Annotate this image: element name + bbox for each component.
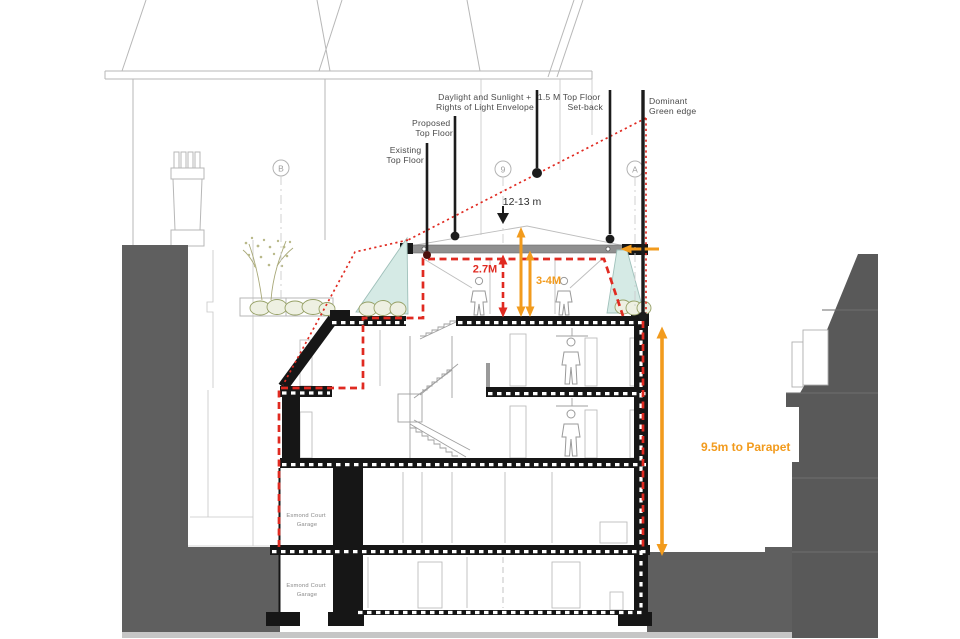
left-party-wall-mass xyxy=(122,245,188,633)
figure-third-floor xyxy=(562,338,580,384)
architectural-section-canvas: B 9 A 2.7M xyxy=(0,0,960,639)
leader-proposed-top-floor: Proposed Top Floor xyxy=(412,116,459,240)
chimney xyxy=(171,152,204,246)
label-existing-line2: Top Floor xyxy=(386,155,424,165)
label-setback-line2: Set-back xyxy=(567,102,603,112)
top-floor-roof xyxy=(400,243,648,255)
grid-bubble-b: B xyxy=(273,160,289,302)
span-arrow-down xyxy=(497,213,509,224)
section-structure xyxy=(266,306,652,626)
svg-text:Dominant Green edge: Dominant Green edge xyxy=(649,96,696,116)
ground-right xyxy=(647,552,792,633)
shrubs-planter xyxy=(250,300,335,316)
svg-text:Proposed Top Floor: Proposed Top Floor xyxy=(412,118,453,138)
ground-baseline-strip xyxy=(122,632,878,638)
envelope-height-arrow-2 xyxy=(526,251,535,318)
leader-dominant-green-edge: Dominant Green edge xyxy=(639,90,697,320)
grid-letter-9: 9 xyxy=(501,165,506,175)
svg-text:Existing Top Floor: Existing Top Floor xyxy=(386,145,424,165)
mansard-wall xyxy=(283,319,333,387)
dimension-9-5m-parapet: 9.5m to Parapet xyxy=(701,440,790,454)
label-existing-line1: Existing xyxy=(390,145,422,155)
room-label-garage-upper: Esmond Court Garage xyxy=(286,513,327,528)
room-labels: Esmond Court Garage Esmond Court Garage xyxy=(286,513,327,598)
foundation-left xyxy=(266,612,300,626)
label-green-edge-line2: Green edge xyxy=(649,106,696,116)
dormer-outline-2 xyxy=(803,330,828,385)
left-wall-upper xyxy=(282,386,300,468)
tree-sprigs xyxy=(243,241,293,300)
grid-letter-b: B xyxy=(278,164,284,174)
right-neighbor-building xyxy=(786,254,878,638)
label-proposed-line1: Proposed xyxy=(412,118,450,128)
svg-text:1.5 M Top Floor Set-ba: 1.5 M Top Floor Set-back xyxy=(538,92,604,112)
grid-letter-a: A xyxy=(632,165,638,175)
leader-existing-top-floor: Existing Top Floor xyxy=(386,143,431,259)
parapet-height-arrow xyxy=(657,327,668,557)
staircase xyxy=(398,321,490,458)
svg-text:Daylight and Sunlight +: Daylight and Sunlight + Rights of Light … xyxy=(436,92,534,112)
figure-top-floor-left xyxy=(471,277,487,315)
ground-masses xyxy=(122,245,792,633)
height-arrow-red xyxy=(499,255,508,318)
span-dimension: 12-13 m xyxy=(497,196,542,224)
dimension-3-4m: 3-4M xyxy=(536,275,561,287)
figure-second-floor xyxy=(562,410,580,456)
label-setback-line1: 1.5 M Top Floor xyxy=(538,92,601,102)
dimension-2-7m: 2.7M xyxy=(473,264,497,276)
core-wall xyxy=(333,468,363,612)
dormer-outline-1 xyxy=(792,342,803,387)
ground-step-right xyxy=(765,547,792,553)
roof-terrace-planting-left xyxy=(240,237,335,316)
label-envelope-line2: Rights of Light Envelope xyxy=(436,102,534,112)
envelope-height-arrow-1 xyxy=(517,227,526,317)
section-drawing: B 9 A 2.7M xyxy=(0,0,960,639)
room-label-garage-lower: Esmond Court Garage xyxy=(286,583,327,598)
label-envelope-line1: Daylight and Sunlight + xyxy=(438,92,531,102)
dimension-12-13m: 12-13 m xyxy=(503,196,542,208)
label-green-edge-line1: Dominant xyxy=(649,96,688,106)
label-proposed-line2: Top Floor xyxy=(415,128,453,138)
